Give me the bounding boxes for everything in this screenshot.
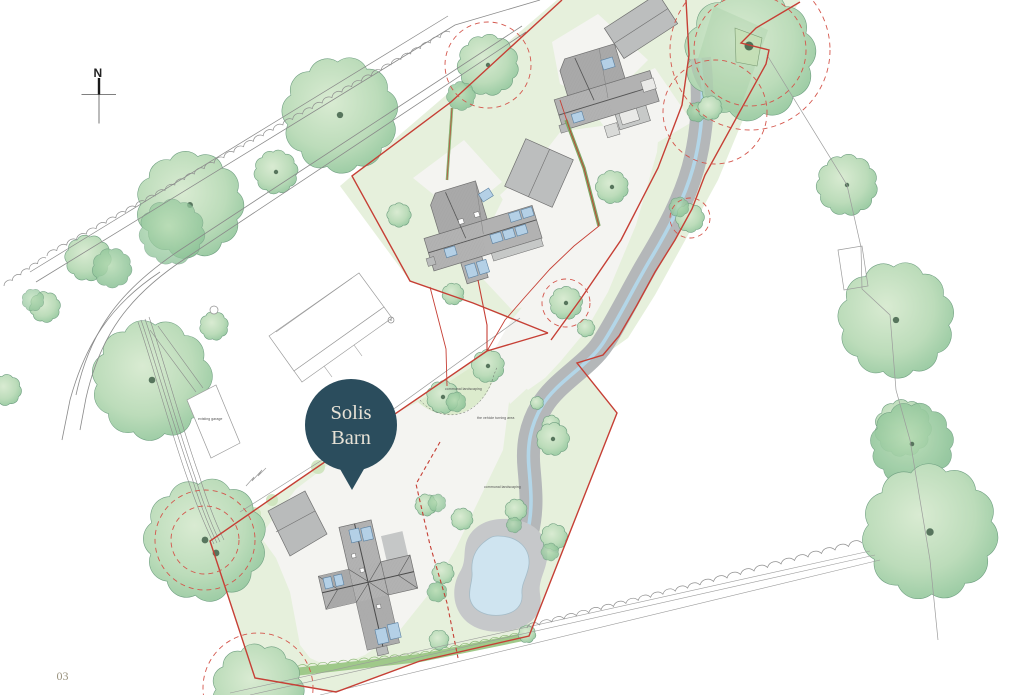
svg-text:existing garage: existing garage [198, 417, 222, 421]
svg-text:communal landscaping: communal landscaping [484, 485, 521, 489]
svg-text:the vehicle turning area: the vehicle turning area [477, 416, 514, 420]
svg-text:Barn: Barn [331, 427, 371, 449]
svg-text:Solis: Solis [330, 402, 371, 424]
svg-text:03: 03 [57, 669, 69, 683]
svg-text:N: N [94, 66, 103, 80]
svg-text:communal landscaping: communal landscaping [445, 387, 482, 391]
